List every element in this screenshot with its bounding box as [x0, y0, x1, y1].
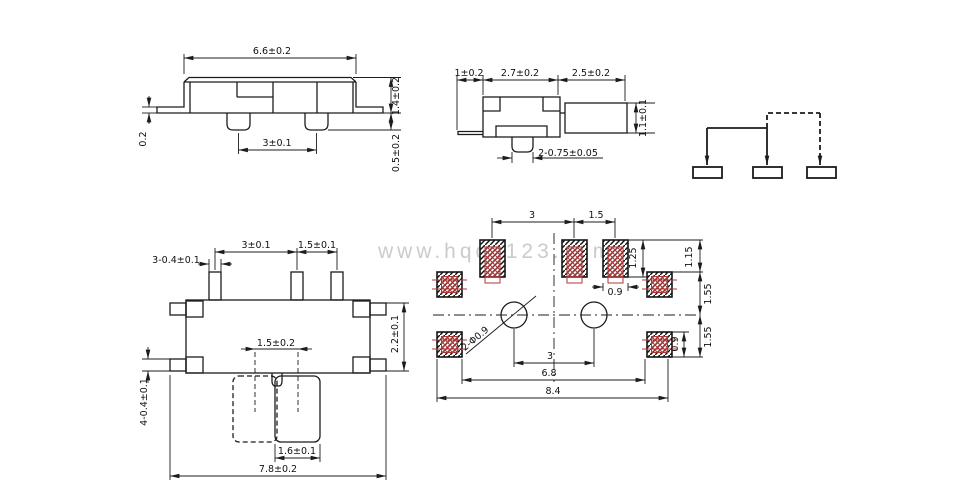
dim-side-pin-pitch: 3±0.1 [262, 138, 291, 149]
dim-top-pin-pitch-a: 3±0.1 [241, 240, 270, 251]
dim-side-pin-depth: 0.5±0.2 [391, 134, 402, 172]
land-pad-corner-lt [432, 272, 467, 297]
land-pad-corner-rt [642, 272, 677, 297]
land-pad-top-1 [480, 240, 505, 283]
land-pattern: 2-Φ0.9 3 1.5 1.25 0.9 1 [432, 210, 714, 402]
dim-side-total-width: 6.6±0.2 [253, 46, 291, 57]
dim-side-body-height: 1.4±0.2 [391, 77, 402, 115]
drawing-sheet: www.hqdz123.com [0, 0, 962, 504]
dim-top-body-depth: 2.2±0.1 [390, 315, 401, 353]
end-view: 1±0.2 2.7±0.2 2.5±0.2 1.1±0.1 2-0.75±0.0… [454, 68, 655, 163]
top-view: 3±0.1 1.5±0.1 3-0.4±0.1 2.2±0.1 1.5±0.2 [139, 240, 409, 480]
dim-top-pin-pitch-b: 1.5±0.1 [298, 240, 336, 251]
dim-land-pad-width: 0.9 [607, 287, 622, 298]
dim-top-corner-pad: 4-0.4±0.1 [139, 378, 150, 426]
technical-drawing: 6.6±0.2 3±0.1 1.4±0.2 0.5±0.2 0.2 [0, 0, 962, 504]
dim-end-terminal-length: 1±0.2 [454, 68, 483, 79]
dim-land-pad-height: 1.25 [628, 247, 639, 268]
dim-end-pin-spec: 2-0.75±0.05 [538, 148, 598, 159]
dim-top-knob-travel: 1.5±0.2 [257, 338, 295, 349]
dim-end-body-width: 2.7±0.2 [501, 68, 539, 79]
dim-land-hole-pitch: 3 [547, 351, 553, 362]
circuit-schematic [693, 113, 836, 178]
dim-land-row-gap-lower: 1.55 [703, 326, 714, 347]
land-pad-top-3 [603, 240, 628, 283]
dim-land-pitch-b: 1.5 [588, 210, 603, 221]
dim-top-total-width: 7.8±0.2 [259, 464, 297, 475]
dim-land-pitch-a: 3 [529, 210, 535, 221]
dim-end-lever-height: 1.1±0.1 [638, 99, 649, 137]
dim-land-corner-pad-height: 0.9 [670, 336, 681, 351]
dim-top-pin-width: 3-0.4±0.1 [152, 255, 200, 266]
dim-land-row-gap-upper: 1.55 [703, 283, 714, 304]
dim-top-knob-width: 1.6±0.1 [278, 446, 316, 457]
land-pad-top-2 [562, 240, 587, 283]
dim-land-outer-span: 8.4 [545, 386, 560, 397]
dim-land-edge-gap: 1.15 [684, 246, 695, 267]
dim-end-lever-length: 2.5±0.2 [572, 68, 610, 79]
dim-land-inner-span: 6.8 [541, 368, 556, 379]
dim-side-foot-thickness: 0.2 [138, 131, 149, 146]
dim-land-holes: 2-Φ0.9 [460, 325, 492, 354]
side-view: 6.6±0.2 3±0.1 1.4±0.2 0.5±0.2 0.2 [138, 46, 402, 172]
